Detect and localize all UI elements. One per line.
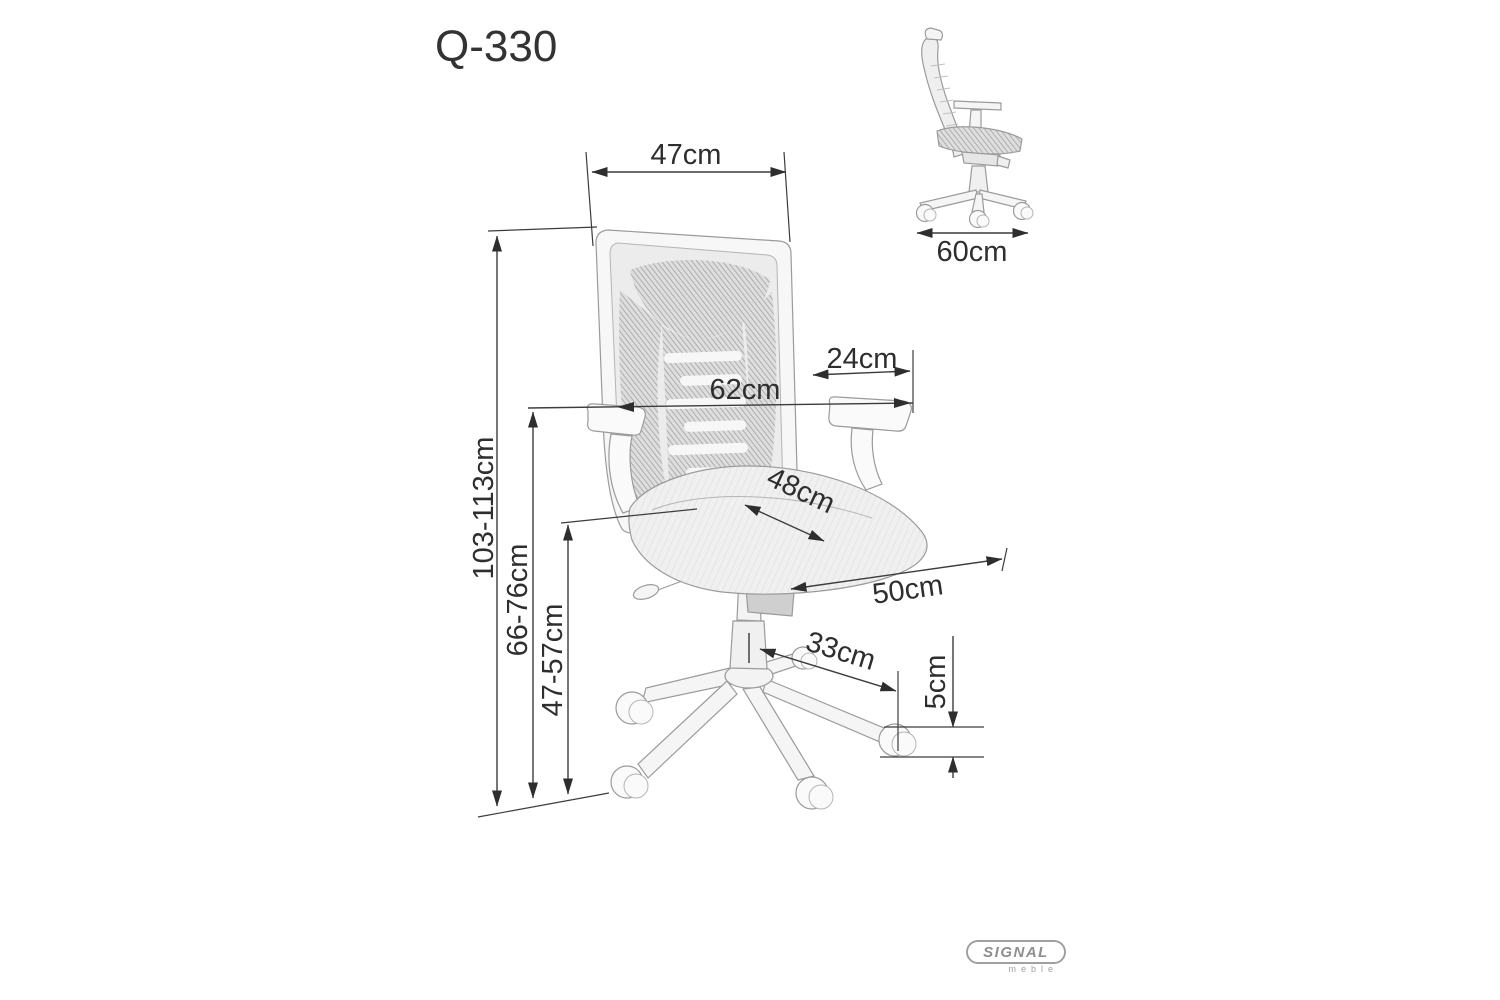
side-lever (997, 156, 1010, 168)
dim-armrest-to-edge: 24cm (813, 343, 910, 375)
dim-label-seat-height: 47-57cm (537, 604, 569, 717)
extension-tick (1002, 548, 1007, 571)
side-seat (937, 127, 1022, 154)
dim-label-side-depth: 60cm (937, 236, 1008, 268)
dim-caster-height: 5cm (880, 636, 984, 778)
caster-bottom (796, 777, 833, 809)
brand-name: SIGNAL (983, 944, 1049, 961)
brand-logo: SIGNAL meble (966, 940, 1076, 974)
brand-logo-frame: SIGNAL (966, 940, 1066, 964)
side-armrest-pad (954, 101, 1001, 110)
extension-line (784, 152, 790, 242)
dim-label-back-width: 47cm (651, 139, 722, 171)
armrest-left-pad (587, 404, 645, 435)
chair-front-view (587, 230, 927, 809)
tilt-lever-handle (632, 582, 661, 602)
extension-line (488, 227, 597, 231)
technical-drawing-page: Q-330 (0, 0, 1500, 1000)
dim-label-armrest-to-edge: 24cm (827, 343, 898, 375)
dim-label-caster-height: 5cm (920, 655, 952, 710)
dim-armrest-height: 66-76cm (502, 412, 534, 798)
dim-label-armrest-height: 66-76cm (502, 544, 534, 657)
chair-side-view (917, 28, 1034, 228)
side-gas-lift (969, 166, 988, 192)
dim-side-depth: 60cm (917, 233, 1028, 268)
dim-back-width: 47cm (586, 139, 790, 246)
dim-label-total-height: 103-113cm (468, 437, 500, 580)
brand-subtitle: meble (966, 964, 1058, 974)
armrest-right-post (851, 428, 882, 490)
dim-label-overall-width: 62cm (710, 374, 781, 406)
armrest-right (829, 397, 911, 490)
dim-label-base-leg-reach: 33cm (802, 626, 879, 677)
chair-dimension-diagram: 47cm 103-113cm 66-76cm 47-57cm (0, 0, 1500, 1000)
side-mechanism (962, 152, 1000, 166)
extension-line (586, 152, 593, 246)
side-headrest-clip (925, 28, 942, 40)
